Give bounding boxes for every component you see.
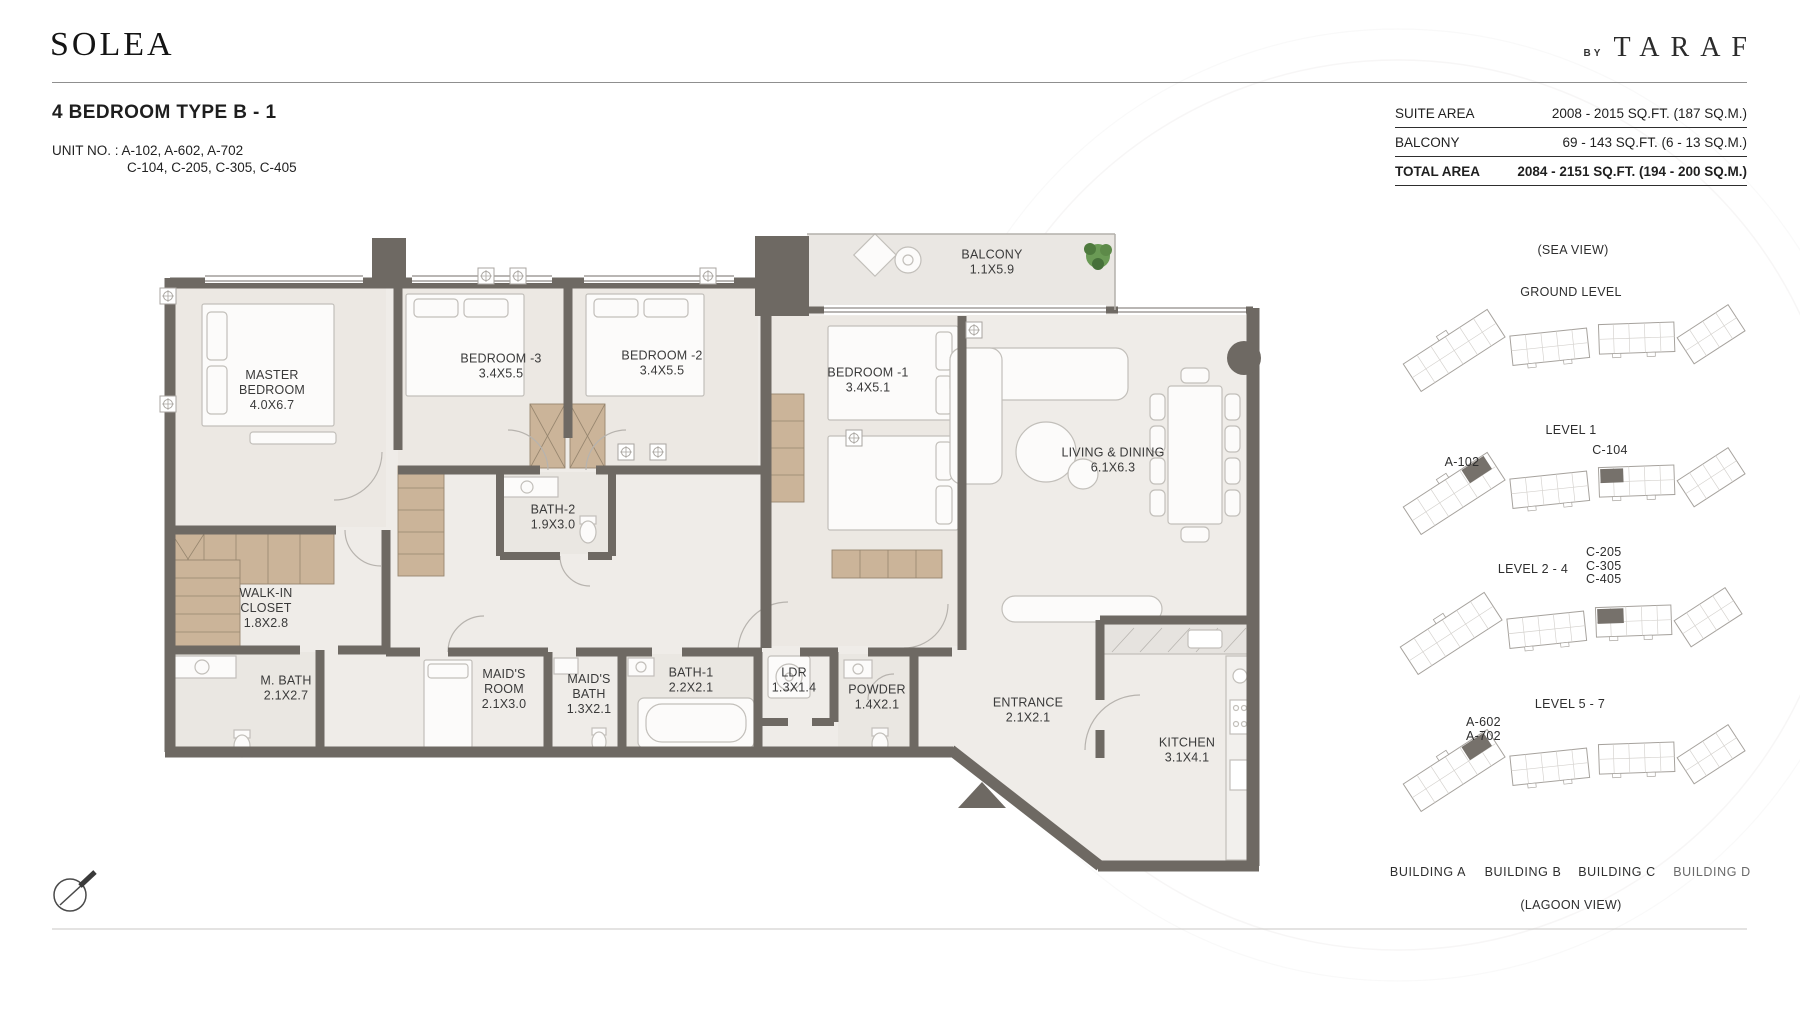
level-label-5-7: LEVEL 5 - 7: [1535, 697, 1605, 711]
brochure-page: SOLEA BY TARAF 4 BEDROOM TYPE B - 1 UNIT…: [0, 0, 1800, 1013]
room-label-bath-2: BATH-2 1.9X3.0: [531, 502, 576, 532]
area-label: SUITE AREA: [1395, 106, 1475, 121]
unit-numbers-line1: UNIT NO. : A-102, A-602, A-702: [52, 143, 243, 158]
page-title: 4 BEDROOM TYPE B - 1: [52, 102, 276, 124]
area-value: 2008 - 2015 SQ.FT. (187 SQ.M.): [1552, 106, 1747, 121]
level-label-ground: GROUND LEVEL: [1520, 285, 1622, 299]
room-label-living-dining: LIVING & DINING 6.1X6.3: [1061, 445, 1164, 475]
room-label-powder: POWDER 1.4X2.1: [848, 682, 905, 712]
header-divider: [52, 82, 1747, 83]
room-label-ldr: LDR 1.3X1.4: [772, 665, 817, 695]
key-plan-ground-level: [1401, 305, 1745, 392]
unit-highlight-c205-405: [1597, 608, 1624, 624]
building-a-label: BUILDING A: [1390, 865, 1466, 879]
by-label: BY: [1584, 48, 1604, 59]
level-label-2-4: LEVEL 2 - 4: [1498, 562, 1568, 576]
compass-icon: [54, 872, 95, 911]
area-row-total: TOTAL AREA 2084 - 2151 SQ.FT. (194 - 200…: [1395, 157, 1747, 186]
taraf-logo: BY TARAF: [1584, 32, 1747, 64]
building-b-label: BUILDING B: [1485, 865, 1562, 879]
room-label-walk-in-closet: WALK-IN CLOSET 1.8X2.8: [225, 586, 307, 630]
unit-labels-a602-702: A-602 A-702: [1466, 716, 1501, 743]
unit-label-a102: A-102: [1445, 455, 1480, 469]
room-label-entrance: ENTRANCE 2.1X2.1: [993, 695, 1063, 725]
unit-label-c104: C-104: [1592, 443, 1628, 457]
level-label-1: LEVEL 1: [1546, 423, 1597, 437]
unit-labels-c205-405: C-205 C-305 C-405: [1586, 546, 1622, 587]
area-row-balcony: BALCONY 69 - 143 SQ.FT. (6 - 13 SQ.M.): [1395, 128, 1747, 157]
room-label-kitchen: KITCHEN 3.1X4.1: [1159, 735, 1215, 765]
unit-label: UNIT NO. :: [52, 143, 119, 158]
key-plan-level-2-4: [1398, 588, 1742, 675]
room-label-master-bedroom: MASTER BEDROOM 4.0X6.7: [217, 368, 327, 412]
area-value: 69 - 143 SQ.FT. (6 - 13 SQ.M.): [1562, 135, 1747, 150]
room-label-balcony: BALCONY 1.1X5.9: [961, 247, 1022, 277]
room-label-maids-bath: MAID'S BATH 1.3X2.1: [560, 672, 618, 716]
building-c-label: BUILDING C: [1578, 865, 1656, 879]
room-label-m-bath: M. BATH 2.1X2.7: [260, 673, 311, 703]
key-plan-level-5-7: [1401, 725, 1745, 812]
room-label-bedroom-2: BEDROOM -2 3.4X5.5: [621, 348, 702, 378]
taraf-wordmark: TARAF: [1613, 32, 1758, 64]
sea-view-label: (SEA VIEW): [1537, 243, 1608, 257]
solea-logo: SOLEA: [50, 26, 175, 64]
area-label: TOTAL AREA: [1395, 164, 1480, 179]
building-d-label: BUILDING D: [1673, 865, 1751, 879]
room-label-bath-1: BATH-1 2.2X2.1: [669, 665, 714, 695]
area-value: 2084 - 2151 SQ.FT. (194 - 200 SQ.M.): [1517, 164, 1747, 179]
area-label: BALCONY: [1395, 135, 1460, 150]
area-row-suite: SUITE AREA 2008 - 2015 SQ.FT. (187 SQ.M.…: [1395, 99, 1747, 128]
unit-values-1: A-102, A-602, A-702: [122, 143, 244, 158]
unit-highlight-c104: [1600, 468, 1623, 483]
area-table: SUITE AREA 2008 - 2015 SQ.FT. (187 SQ.M.…: [1395, 99, 1747, 186]
lagoon-view-label: (LAGOON VIEW): [1520, 898, 1621, 912]
room-label-bedroom-1: BEDROOM -1 3.4X5.1: [827, 365, 908, 395]
room-label-maids-room: MAID'S ROOM 2.1X3.0: [472, 667, 536, 711]
room-label-bedroom-3: BEDROOM -3 3.4X5.5: [460, 351, 541, 381]
unit-numbers-line2: C-104, C-205, C-305, C-405: [127, 160, 297, 175]
